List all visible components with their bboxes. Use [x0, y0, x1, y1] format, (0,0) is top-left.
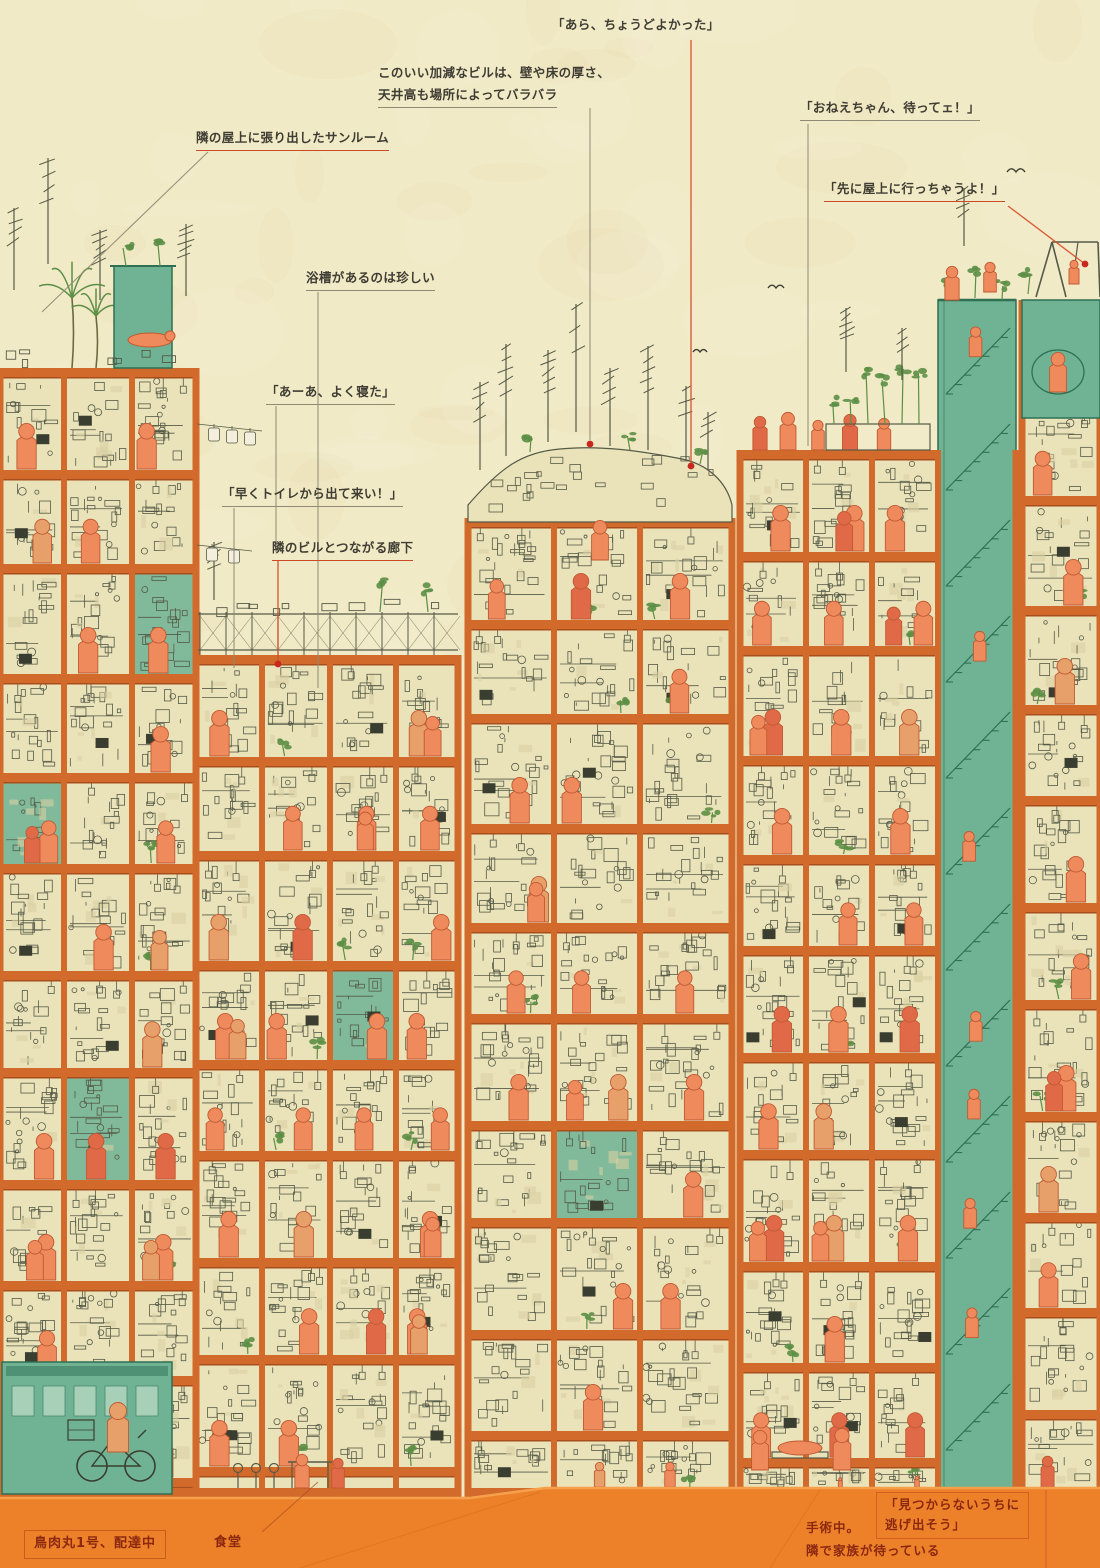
city-cross-section-drawing	[0, 0, 1100, 1568]
illustration-canvas: 「あら、ちょうどよかった」 このいい加減なビルは、壁や床の厚さ、 天井高も場所に…	[0, 0, 1100, 1568]
